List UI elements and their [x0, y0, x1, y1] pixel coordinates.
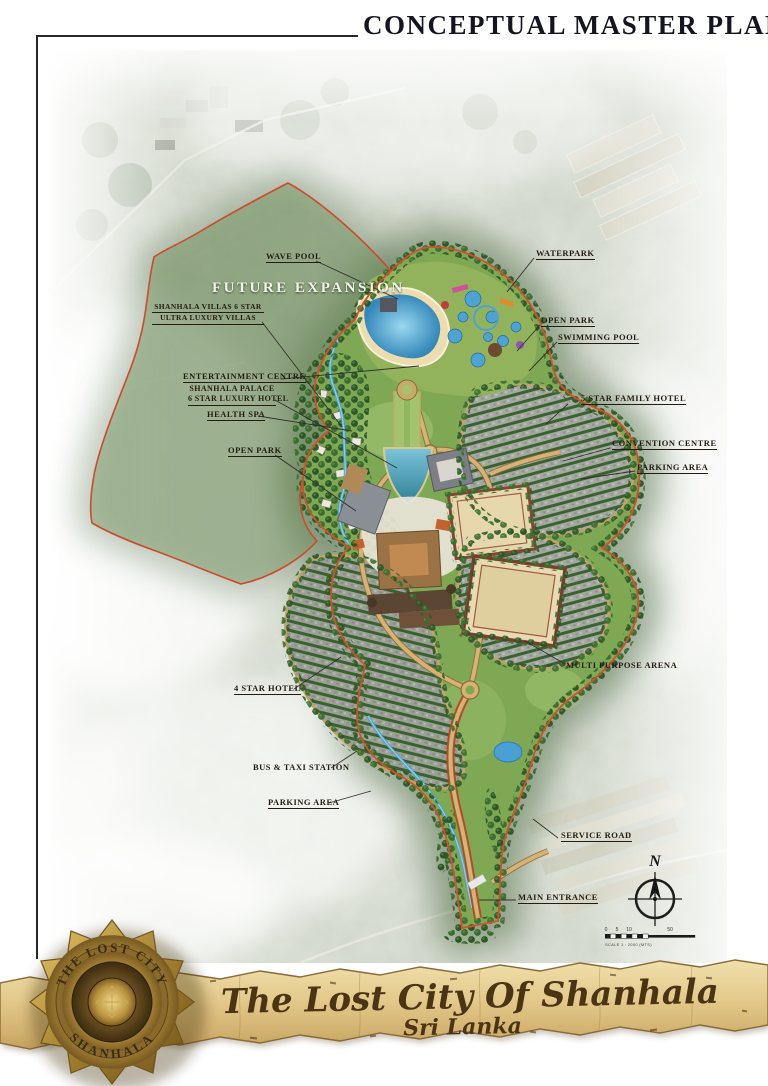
- label-multi-purpose-arena: MULTI PURPOSE ARENA: [566, 660, 677, 670]
- scale-bar: 0 5 10 50 SCALE 1 : 2000 (MTS): [596, 922, 706, 950]
- scale-tick-2: 10: [626, 927, 632, 933]
- label-bus-taxi-station: BUS & TAXI STATION: [253, 762, 349, 772]
- label-five-star-family-hotel: 5 STAR FAMILY HOTEL: [581, 393, 686, 405]
- label-future-expansion: FUTURE EXPANSION: [212, 280, 405, 297]
- label-shanhala-villas-line1: SHANHALA VILLAS 6 STAR: [152, 302, 264, 313]
- label-wave-pool: WAVE POOL: [266, 251, 321, 263]
- scale-tick-0: 0: [605, 927, 608, 933]
- dome-building: [488, 343, 502, 357]
- label-waterpark: WATERPARK: [536, 248, 595, 260]
- label-convention-centre: CONVENTION CENTRE: [612, 438, 717, 450]
- banner-subtitle: Sri Lanka: [403, 1013, 522, 1041]
- label-four-star-hotel: 4 STAR HOTEL: [234, 683, 301, 695]
- compass-rose: N: [620, 845, 690, 930]
- label-service-road: SERVICE ROAD: [561, 830, 632, 842]
- label-swimming-pool: SWIMMING POOL: [558, 332, 639, 344]
- pond: [494, 742, 522, 762]
- medallion-seal: THE LOST CITY SHANHALA: [8, 905, 218, 1086]
- scale-caption: SCALE 1 : 2000 (MTS): [605, 942, 652, 947]
- scale-bar-zebra: [605, 934, 648, 939]
- label-entertainment-centre: ENTERTAINMENT CENTRE: [183, 371, 306, 383]
- label-open-park-right: OPEN PARK: [541, 315, 595, 327]
- label-open-park-left: OPEN PARK: [228, 445, 282, 457]
- label-shanhala-palace-line1: SHANHALA PALACE: [188, 384, 276, 394]
- wave-machine-building: [380, 298, 397, 312]
- compass-north-label: N: [648, 853, 662, 870]
- map-graphic: [48, 50, 727, 963]
- master-plan-page: CONCEPTUAL MASTER PLAN: [0, 0, 768, 1086]
- label-main-entrance: MAIN ENTRANCE: [518, 892, 598, 904]
- label-shanhala-villas-line2: ULTRA LUXURY VILLAS: [152, 313, 264, 324]
- label-parking-area-lower: PARKING AREA: [268, 797, 339, 809]
- label-parking-area-right: PARKING AREA: [637, 462, 708, 474]
- scale-tick-1: 5: [616, 927, 619, 933]
- palace-main-building: [377, 530, 442, 589]
- scale-bar-solid: [648, 935, 695, 938]
- scale-tick-3: 50: [667, 927, 673, 933]
- attraction-dot-red: [441, 301, 449, 309]
- label-shanhala-palace: SHANHALA PALACE 6 STAR LUXURY HOTEL: [188, 384, 276, 406]
- multi-purpose-arena-ground: [463, 556, 565, 646]
- label-health-spa: HEALTH SPA: [207, 409, 265, 421]
- label-shanhala-palace-line2: 6 STAR LUXURY HOTEL: [188, 394, 276, 404]
- label-shanhala-villas: SHANHALA VILLAS 6 STAR ULTRA LUXURY VILL…: [152, 302, 264, 325]
